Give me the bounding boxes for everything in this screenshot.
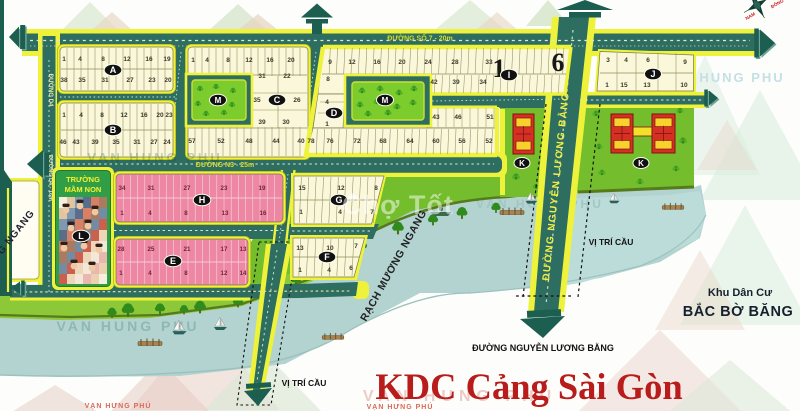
- svg-text:I: I: [508, 70, 511, 80]
- svg-text:20: 20: [156, 112, 164, 119]
- svg-text:35: 35: [253, 97, 261, 104]
- svg-text:13: 13: [296, 245, 304, 252]
- svg-text:15: 15: [620, 82, 628, 89]
- svg-text:D: D: [331, 108, 338, 118]
- svg-text:VỊ TRÍ CẦU: VỊ TRÍ CẦU: [282, 378, 327, 388]
- svg-text:23: 23: [165, 112, 173, 119]
- svg-text:8: 8: [326, 76, 330, 83]
- svg-text:46: 46: [454, 114, 462, 121]
- svg-text:31: 31: [258, 73, 266, 80]
- svg-text:ĐƯỜNG N3 - 25m: ĐƯỜNG N3 - 25m: [196, 160, 254, 169]
- svg-text:1: 1: [191, 57, 195, 64]
- svg-text:72: 72: [353, 138, 361, 145]
- svg-text:43: 43: [432, 114, 440, 121]
- svg-text:ĐƯỜNG D4 - 16m: ĐƯỜNG D4 - 16m: [47, 155, 55, 201]
- svg-text:8: 8: [100, 112, 104, 119]
- svg-text:4: 4: [148, 210, 152, 217]
- svg-text:4: 4: [325, 99, 329, 106]
- svg-text:16: 16: [145, 56, 153, 63]
- svg-text:48: 48: [245, 138, 253, 145]
- svg-text:31: 31: [101, 77, 109, 84]
- svg-text:20: 20: [398, 59, 406, 66]
- svg-text:12: 12: [221, 270, 228, 277]
- svg-text:24: 24: [163, 139, 171, 146]
- svg-text:13: 13: [643, 82, 651, 89]
- svg-text:4: 4: [148, 270, 152, 277]
- svg-text:7: 7: [354, 243, 358, 250]
- svg-text:1: 1: [62, 56, 66, 63]
- svg-text:B: B: [110, 125, 117, 135]
- svg-text:ĐƯỜNG NGUYỄN LƯƠNG BẰNG: ĐƯỜNG NGUYỄN LƯƠNG BẰNG: [472, 342, 614, 353]
- svg-text:52: 52: [485, 138, 493, 145]
- svg-text:16: 16: [373, 59, 381, 66]
- svg-text:16: 16: [260, 210, 267, 217]
- svg-text:VẠN HƯNG PHÚ: VẠN HƯNG PHÚ: [367, 402, 434, 411]
- svg-text:9: 9: [328, 59, 332, 66]
- svg-text:39: 39: [91, 139, 99, 146]
- svg-text:K: K: [638, 159, 644, 168]
- svg-text:38: 38: [60, 77, 68, 84]
- svg-text:C: C: [274, 95, 281, 105]
- svg-text:76: 76: [326, 138, 334, 145]
- svg-text:39: 39: [258, 119, 266, 126]
- svg-text:17: 17: [221, 246, 228, 253]
- svg-text:60: 60: [432, 138, 440, 145]
- svg-text:3: 3: [606, 57, 610, 64]
- svg-text:52: 52: [217, 138, 225, 145]
- svg-text:14: 14: [240, 270, 247, 277]
- svg-text:12: 12: [245, 57, 253, 64]
- svg-text:51: 51: [486, 114, 494, 121]
- svg-text:1: 1: [119, 270, 123, 277]
- svg-text:39: 39: [452, 79, 460, 86]
- svg-text:22: 22: [283, 73, 291, 80]
- svg-text:KDC Cảng Sài Gòn: KDC Cảng Sài Gòn: [375, 366, 682, 407]
- svg-text:44: 44: [272, 138, 280, 145]
- svg-text:28: 28: [118, 246, 125, 253]
- svg-text:1: 1: [299, 209, 303, 216]
- svg-text:56: 56: [458, 138, 466, 145]
- svg-text:15: 15: [298, 185, 306, 192]
- svg-text:TRƯỜNG: TRƯỜNG: [66, 175, 100, 184]
- svg-text:A: A: [110, 65, 117, 75]
- svg-text:1: 1: [62, 112, 66, 119]
- svg-text:H: H: [199, 195, 206, 205]
- svg-text:6: 6: [552, 48, 565, 77]
- svg-text:25: 25: [148, 246, 155, 253]
- svg-text:VẠN HƯNG PHÚ: VẠN HƯNG PHÚ: [85, 401, 152, 410]
- svg-text:19: 19: [163, 56, 171, 63]
- svg-text:6: 6: [646, 57, 650, 64]
- svg-text:31: 31: [148, 185, 155, 192]
- svg-text:9: 9: [683, 59, 687, 66]
- svg-text:8: 8: [184, 270, 188, 277]
- svg-text:4: 4: [79, 112, 83, 119]
- svg-text:21: 21: [184, 246, 191, 253]
- svg-text:10: 10: [680, 82, 688, 89]
- svg-text:35: 35: [112, 139, 120, 146]
- svg-text:34: 34: [119, 185, 126, 192]
- svg-text:20: 20: [164, 77, 172, 84]
- svg-text:13: 13: [240, 246, 247, 253]
- svg-text:31: 31: [133, 139, 141, 146]
- svg-text:26: 26: [293, 97, 301, 104]
- svg-text:L: L: [78, 231, 84, 241]
- svg-text:12: 12: [120, 112, 128, 119]
- svg-text:1: 1: [325, 121, 329, 128]
- svg-text:12: 12: [348, 59, 356, 66]
- svg-text:MẦM NON: MẦM NON: [65, 184, 102, 194]
- svg-text:E: E: [170, 256, 176, 266]
- svg-text:27: 27: [184, 185, 191, 192]
- svg-text:8: 8: [226, 57, 230, 64]
- svg-text:57: 57: [188, 138, 196, 145]
- svg-text:1: 1: [605, 82, 609, 89]
- svg-text:23: 23: [148, 77, 156, 84]
- svg-text:J: J: [650, 69, 655, 79]
- svg-text:M: M: [215, 96, 222, 105]
- svg-text:Chợ Tốt: Chợ Tốt: [342, 190, 454, 220]
- svg-text:1: 1: [298, 267, 302, 274]
- svg-text:16: 16: [266, 57, 274, 64]
- svg-text:27: 27: [150, 139, 158, 146]
- svg-text:16: 16: [140, 112, 148, 119]
- svg-text:4: 4: [327, 267, 331, 274]
- svg-text:4: 4: [624, 57, 628, 64]
- svg-text:34: 34: [479, 79, 487, 86]
- svg-text:78: 78: [307, 138, 315, 145]
- svg-text:F: F: [324, 252, 330, 262]
- svg-text:20: 20: [287, 57, 295, 64]
- svg-text:M: M: [382, 96, 389, 105]
- svg-text:30: 30: [282, 119, 290, 126]
- svg-text:68: 68: [379, 138, 387, 145]
- svg-text:19: 19: [259, 185, 266, 192]
- svg-text:8: 8: [101, 56, 105, 63]
- svg-text:12: 12: [123, 56, 131, 63]
- svg-text:1: 1: [120, 210, 124, 217]
- svg-text:6: 6: [349, 265, 353, 272]
- svg-text:28: 28: [451, 59, 459, 66]
- svg-text:8: 8: [184, 210, 188, 217]
- svg-text:K: K: [519, 159, 525, 168]
- svg-text:HUNG PHU: HUNG PHU: [699, 70, 784, 85]
- svg-text:64: 64: [406, 138, 414, 145]
- svg-text:27: 27: [126, 77, 134, 84]
- svg-text:13: 13: [222, 210, 229, 217]
- svg-text:ĐƯỜNG D4: ĐƯỜNG D4: [47, 74, 55, 107]
- svg-text:46: 46: [59, 139, 67, 146]
- svg-text:40: 40: [297, 138, 305, 145]
- svg-text:35: 35: [78, 77, 86, 84]
- svg-text:24: 24: [424, 59, 432, 66]
- svg-text:42: 42: [430, 79, 438, 86]
- svg-text:BẮC BỜ BĂNG: BẮC BỜ BĂNG: [683, 302, 794, 320]
- svg-text:4: 4: [205, 57, 209, 64]
- svg-text:4: 4: [78, 56, 82, 63]
- svg-text:Khu Dân Cư: Khu Dân Cư: [708, 287, 772, 299]
- svg-text:23: 23: [221, 185, 228, 192]
- svg-text:43: 43: [72, 139, 80, 146]
- svg-text:VỊ TRÍ CẦU: VỊ TRÍ CẦU: [589, 237, 634, 247]
